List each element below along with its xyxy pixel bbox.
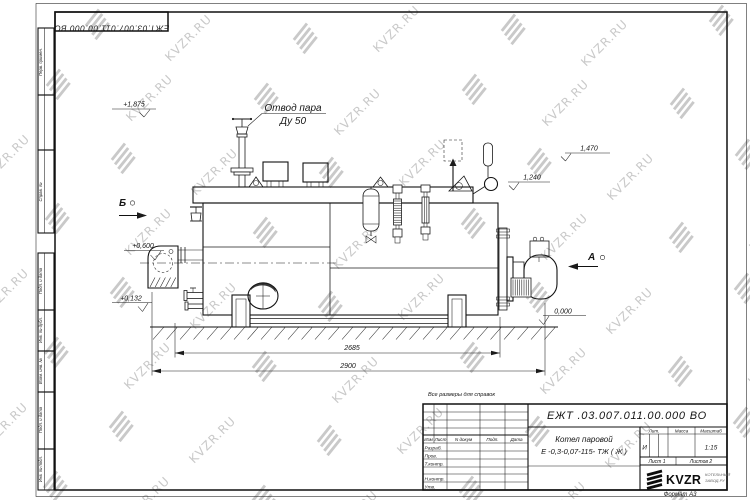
level-mark-0132: +0,132 bbox=[112, 296, 152, 312]
watermark-layer: KVZR.RUKVZR.RUKVZR.RUKVZR.RUKVZR.RUKVZR.… bbox=[0, 3, 750, 500]
watermark-logo-icon bbox=[667, 223, 696, 253]
watermark-text: KVZR.RU bbox=[0, 266, 32, 318]
watermark-logo-icon bbox=[460, 75, 489, 105]
watermark-text: KVZR.RU bbox=[745, 336, 750, 388]
format-label: Формат А3 bbox=[664, 492, 697, 498]
col-docum: N докум bbox=[455, 437, 473, 442]
level-text: +1,875 bbox=[123, 102, 145, 109]
technical-drawing-canvas: KVZR.RUKVZR.RUKVZR.RUKVZR.RUKVZR.RUKVZR.… bbox=[0, 0, 750, 500]
lit-header: Лит. bbox=[648, 429, 660, 434]
row-prov: Пров. bbox=[425, 454, 438, 460]
support-leg-right bbox=[448, 295, 466, 327]
watermark-logo-icon bbox=[733, 140, 750, 170]
level-mark-1240: 1,240 bbox=[508, 175, 550, 191]
watermark-text: KVZR.RU bbox=[329, 354, 381, 406]
col-data: Дата bbox=[509, 437, 523, 442]
row-nkontr: Н.контр. bbox=[425, 477, 445, 483]
gauge-glass-2 bbox=[421, 185, 430, 240]
watermark-text: KVZR.RU bbox=[186, 414, 238, 466]
scale-header: Масштаб bbox=[700, 429, 722, 434]
stamp-label: Инв. № дубл. bbox=[38, 317, 43, 343]
stamp-label: Подп. и дата bbox=[38, 406, 43, 433]
watermark-text: KVZR.RU bbox=[0, 132, 33, 184]
watermark-logo-icon bbox=[291, 24, 320, 54]
callout-text-line1: Отвод пара bbox=[264, 103, 322, 114]
ground-line bbox=[150, 327, 558, 340]
watermark-logo-icon bbox=[458, 343, 487, 373]
watermark-text: KVZR.RU bbox=[603, 285, 655, 337]
base-rail bbox=[240, 319, 458, 324]
left-stamp-column: Перв. примен. Справ. № Подп. и дата Инв.… bbox=[38, 28, 54, 490]
manhole-oval bbox=[248, 282, 278, 309]
level-text: +0,132 bbox=[120, 296, 142, 303]
reference-note: Все размеры для справок bbox=[428, 392, 495, 398]
dimension-text: 2900 bbox=[339, 363, 356, 370]
watermark-text: KVZR.RU bbox=[396, 137, 448, 189]
row-razrab: Разраб. bbox=[425, 446, 442, 452]
mass-header: Масса bbox=[675, 429, 689, 434]
view-b-label: Б bbox=[119, 198, 126, 209]
top-doc-number-box: ЕЖТ.03.007.011.00.000 ВО bbox=[54, 12, 170, 33]
col-list: Лист bbox=[434, 437, 447, 442]
stamp-label: Инв. № подл. bbox=[38, 456, 43, 482]
watermark-logo-icon bbox=[42, 338, 71, 368]
row-utv: Утв. bbox=[425, 485, 436, 491]
front-top-valve bbox=[190, 207, 202, 221]
level-text: 1,470 bbox=[580, 146, 598, 153]
stamp-label: Подп. и дата bbox=[38, 267, 43, 294]
stamp-label: Взам. инв. № bbox=[38, 358, 43, 384]
watermark-logo-icon bbox=[43, 204, 72, 234]
scale-value: 1:15 bbox=[705, 445, 718, 452]
watermark-text: KVZR.RU bbox=[578, 17, 630, 69]
watermark-text: KVZR.RU bbox=[744, 470, 750, 500]
watermark-logo-icon bbox=[317, 158, 346, 188]
drum-box-1 bbox=[263, 162, 288, 187]
watermark-logo-icon bbox=[732, 274, 750, 304]
watermark-text: KVZR.RU bbox=[123, 72, 175, 124]
callout-text-line2: Ду 50 bbox=[279, 116, 306, 127]
watermark-text: KVZR.RU bbox=[0, 400, 31, 452]
brand-cell: KVZR КОТЕЛЬНЫЙ ЗАВОД.РУ bbox=[647, 471, 730, 489]
stamp-label: Перв. примен. bbox=[38, 48, 43, 76]
lifting-lug-left bbox=[249, 177, 263, 187]
stamp-box-blank bbox=[38, 95, 54, 150]
brand-sub1: КОТЕЛЬНЫЙ bbox=[705, 472, 730, 477]
stamp-box-podp-data-1: Подп. и дата bbox=[38, 253, 54, 310]
watermark-text: KVZR.RU bbox=[539, 77, 591, 129]
stamp-box-podp-data-2: Подп. и дата bbox=[38, 392, 54, 449]
sheet-label: Лист 1 bbox=[647, 459, 665, 465]
sheets-label: Листов 2 bbox=[689, 459, 713, 465]
watermark-logo-icon bbox=[107, 412, 136, 442]
upper-drum bbox=[193, 187, 473, 203]
front-pipe-stubs bbox=[184, 288, 203, 310]
level-mark-1470: 1,470 bbox=[561, 146, 610, 162]
watermark-text: KVZR.RU bbox=[121, 340, 173, 392]
watermark-text: KVZR.RU bbox=[120, 474, 172, 500]
title-right-grid: Лит. Масса Масштаб И 1:15 Лист 1 Листов … bbox=[640, 427, 727, 465]
watermark-logo-icon bbox=[731, 408, 750, 438]
col-izm: Изм bbox=[424, 437, 433, 442]
level-text: 1,240 bbox=[523, 175, 541, 182]
watermark-text: KVZR.RU bbox=[604, 151, 656, 203]
brand-name: KVZR bbox=[666, 473, 701, 487]
level-mark-0000: 0,000 bbox=[539, 309, 586, 325]
watermark-text: KVZR.RU bbox=[331, 86, 383, 138]
col-podp: Подп. bbox=[486, 437, 498, 442]
watermark-text: KVZR.RU bbox=[746, 202, 750, 254]
view-a-label: А bbox=[587, 252, 595, 263]
watermark-text: KVZR.RU bbox=[370, 3, 422, 55]
drawing-sheet: KVZR.RUKVZR.RUKVZR.RUKVZR.RUKVZR.RUKVZR.… bbox=[0, 0, 750, 500]
steam-outlet-callout: Отвод пара Ду 50 bbox=[248, 103, 326, 127]
watermark-logo-icon bbox=[249, 486, 278, 500]
pressure-gauge-siphon bbox=[473, 143, 498, 194]
brand-sub2: ЗАВОД.РУ bbox=[705, 478, 725, 483]
ground-hatching bbox=[153, 328, 555, 340]
product-name-line1: Котел паровой bbox=[555, 435, 613, 444]
view-arrow-a: А bbox=[568, 252, 605, 270]
watermark-logo-icon bbox=[108, 278, 137, 308]
doc-number-rotated: ЕЖТ.03.007.011.00.000 ВО bbox=[54, 24, 170, 33]
title-doc-number: ЕЖТ .03.007.011.00.000 ВО bbox=[547, 410, 707, 422]
watermark-text: KVZR.RU bbox=[162, 12, 214, 64]
front-door bbox=[148, 246, 203, 288]
watermark-logo-icon bbox=[459, 209, 488, 239]
support-leg-left bbox=[232, 295, 250, 327]
level-text: +0,600 bbox=[132, 243, 154, 250]
watermark-logo-icon bbox=[315, 426, 344, 456]
watermark-logo-icon bbox=[251, 218, 280, 248]
watermark-logo-icon bbox=[666, 357, 695, 387]
stamp-box-vzam-inv: Взам. инв. № bbox=[38, 351, 54, 392]
level-text: 0,000 bbox=[554, 309, 572, 316]
row-tkontr: Т.контр. bbox=[425, 462, 444, 468]
lit-value: И bbox=[642, 445, 647, 452]
watermark-logo-icon bbox=[499, 15, 528, 45]
view-arrow-b: Б bbox=[119, 198, 147, 219]
watermark-logo-icon bbox=[109, 144, 138, 174]
door-hatching bbox=[150, 278, 176, 288]
title-block: Изм Лист N докум Подп. Дата Разраб. Пров… bbox=[423, 404, 730, 491]
dimension-text: 2685 bbox=[343, 345, 360, 352]
product-name-line2: Е -0,3-0,07-115- ТЖ ( Ж ) bbox=[541, 447, 627, 456]
stamp-label: Справ. № bbox=[38, 182, 43, 201]
watermark-logo-icon bbox=[707, 6, 736, 36]
watermark-logo-icon bbox=[668, 89, 697, 119]
lifting-lug-right bbox=[373, 177, 388, 187]
gauge-glass-1 bbox=[393, 185, 402, 243]
watermark-logo-icon bbox=[250, 352, 279, 382]
safety-valve bbox=[444, 140, 472, 191]
kvzr-logo-icon bbox=[647, 471, 662, 489]
